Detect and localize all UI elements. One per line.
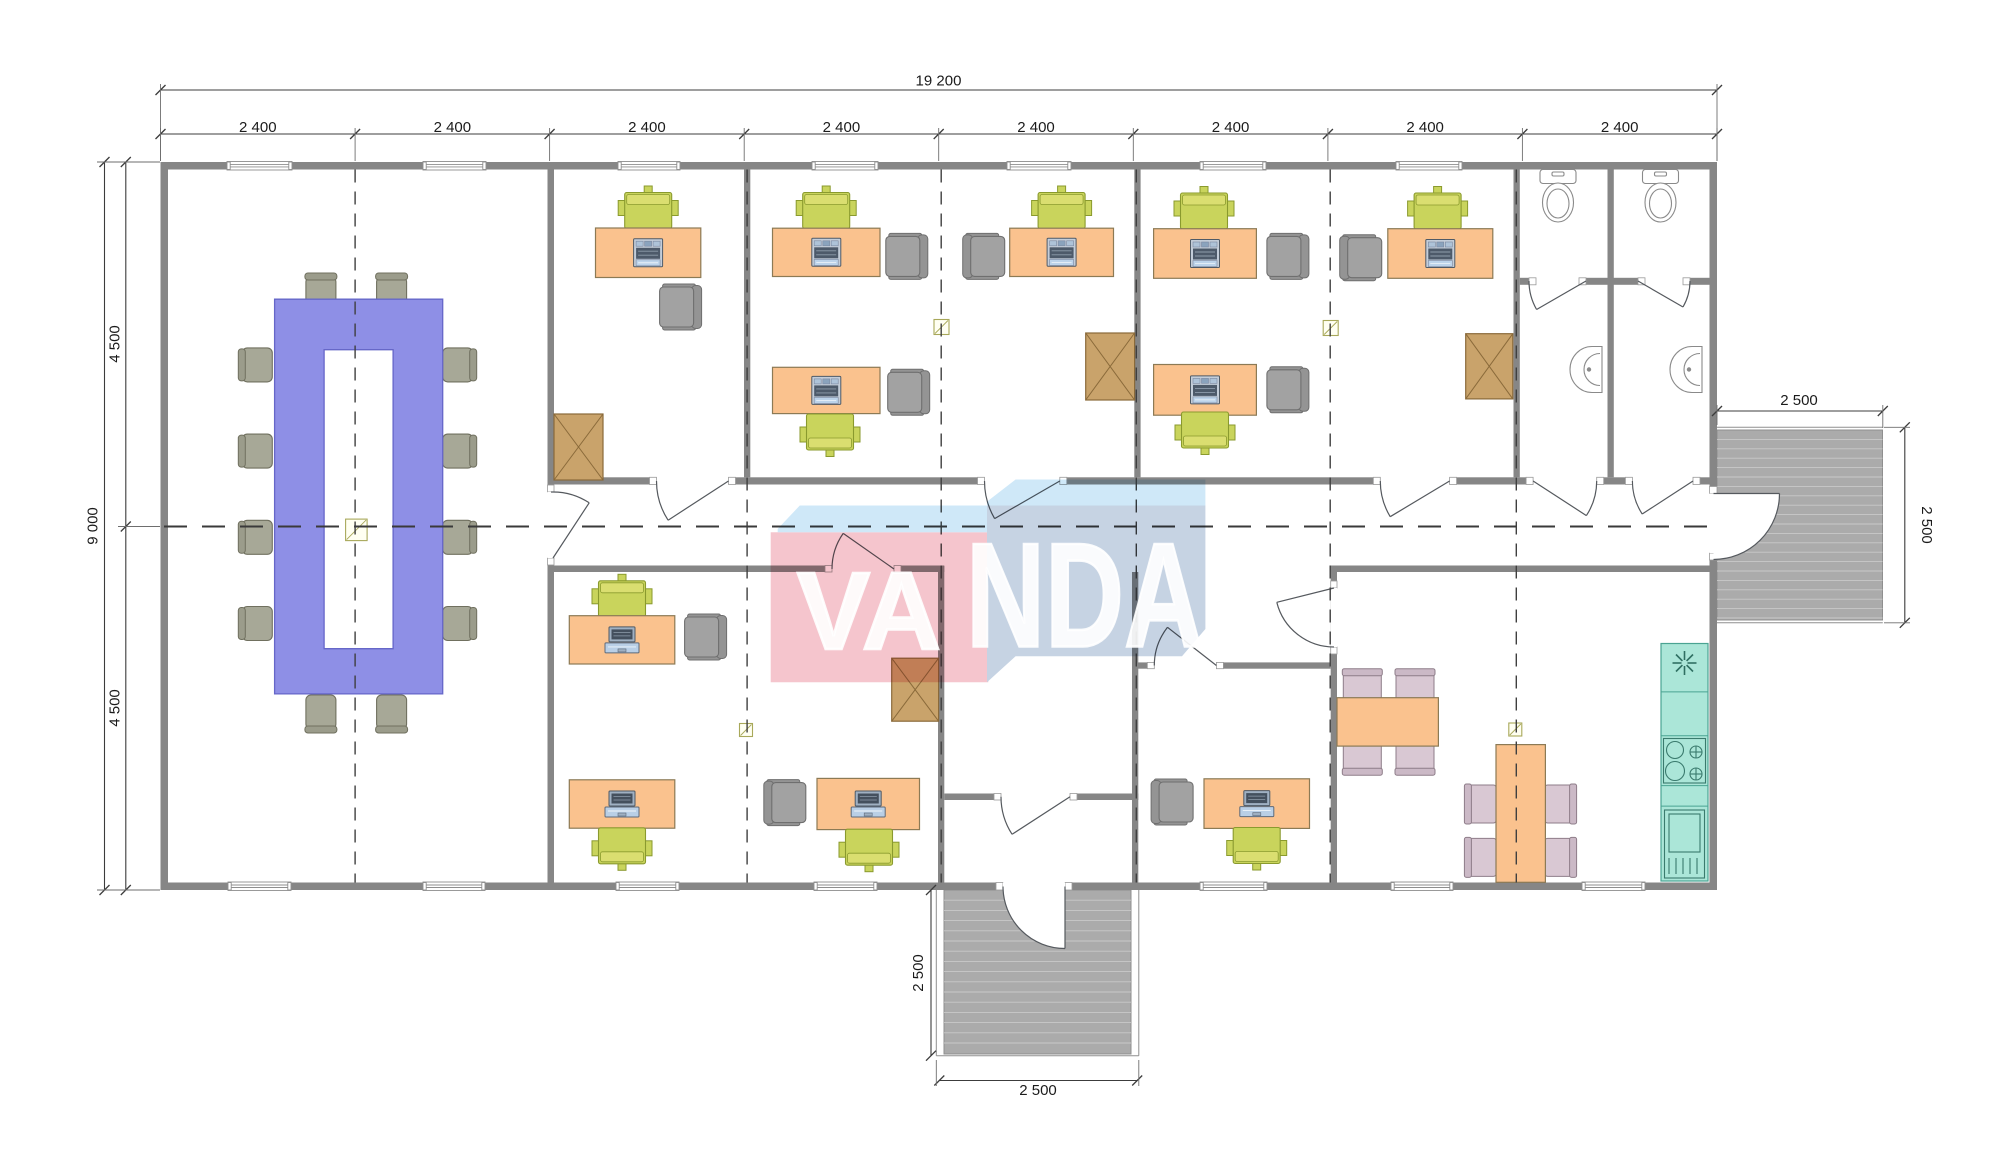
svg-text:2 500: 2 500 xyxy=(1780,392,1818,409)
svg-text:2 400: 2 400 xyxy=(1017,119,1055,136)
svg-text:VA: VA xyxy=(797,550,941,673)
svg-text:2 400: 2 400 xyxy=(628,119,666,136)
svg-text:2 400: 2 400 xyxy=(1601,119,1639,136)
svg-text:NDA: NDA xyxy=(966,512,1203,679)
svg-text:4 500: 4 500 xyxy=(107,325,124,363)
svg-text:2 400: 2 400 xyxy=(434,119,472,136)
svg-text:2 400: 2 400 xyxy=(1406,119,1444,136)
svg-text:4 500: 4 500 xyxy=(107,689,124,727)
svg-text:2 400: 2 400 xyxy=(1212,119,1250,136)
svg-text:2 400: 2 400 xyxy=(239,119,277,136)
svg-text:2 500: 2 500 xyxy=(1019,1082,1057,1099)
svg-text:2 400: 2 400 xyxy=(823,119,861,136)
svg-text:19 200: 19 200 xyxy=(916,73,962,90)
svg-text:2 500: 2 500 xyxy=(1918,506,1935,544)
svg-text:9 000: 9 000 xyxy=(85,507,102,545)
svg-text:2 500: 2 500 xyxy=(910,954,927,992)
